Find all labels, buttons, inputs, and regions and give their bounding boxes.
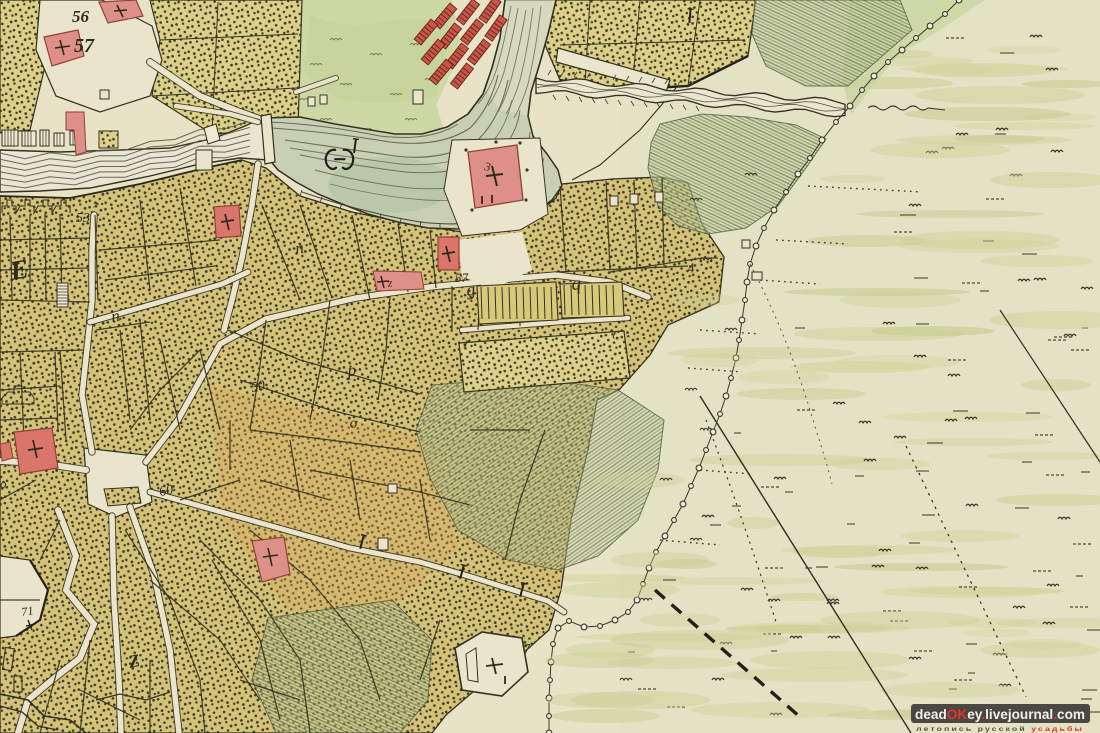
svg-text:летопись русской усадьбы: летопись русской усадьбы <box>916 725 1084 733</box>
svg-text:p: p <box>346 360 357 380</box>
svg-text:71: 71 <box>20 603 34 619</box>
svg-text:o: o <box>0 476 7 491</box>
svg-text:57: 57 <box>455 270 469 285</box>
svg-text:60: 60 <box>158 483 174 500</box>
svg-text:57: 57 <box>74 35 95 57</box>
svg-text:53: 53 <box>76 211 90 226</box>
svg-text:56: 56 <box>72 7 90 26</box>
svg-text:↗: ↗ <box>92 200 100 210</box>
svg-text:deadOKey.livejournal.com: deadOKey.livejournal.com <box>915 706 1085 722</box>
